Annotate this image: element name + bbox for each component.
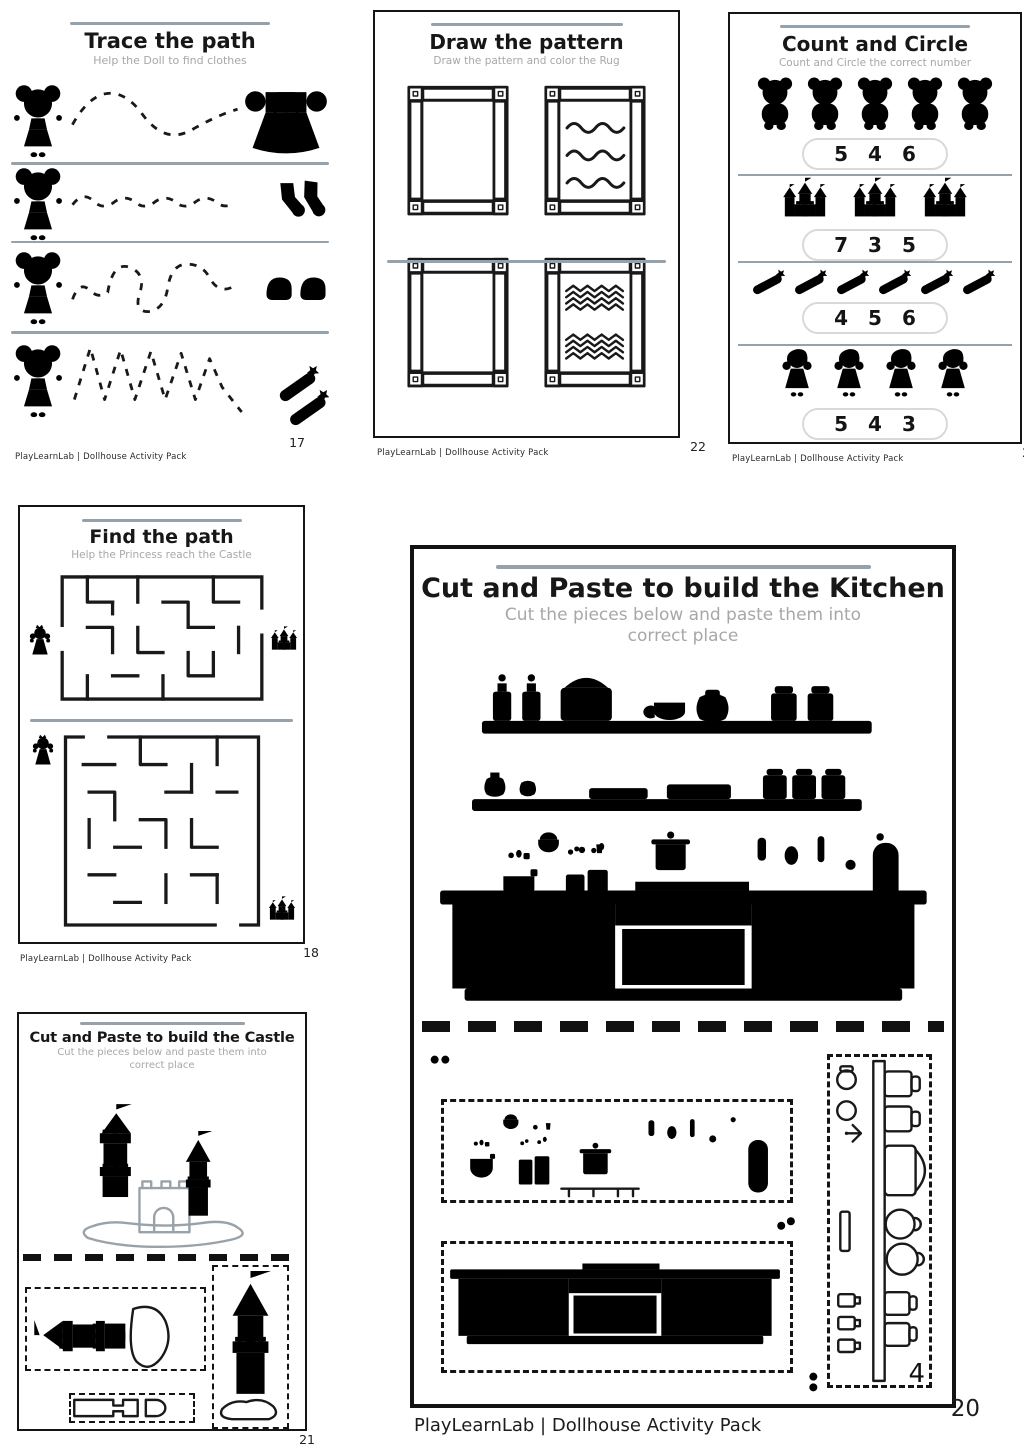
socks-icon — [273, 178, 329, 228]
page-number: 17 — [289, 435, 305, 450]
footer-brand: PlayLearnLab | Dollhouse Activity Pack — [20, 954, 192, 964]
kitchen-piece-box-shelf: 4 — [827, 1054, 932, 1388]
count-row: 546 — [730, 72, 1020, 174]
answer-option: 4 — [868, 412, 882, 436]
castle-icon — [920, 176, 970, 223]
header-underline — [80, 1022, 245, 1025]
princess-icon — [30, 733, 56, 773]
count-icons — [749, 273, 1001, 292]
divider-line — [387, 260, 666, 263]
kitchen-piece-shelf-rotated — [830, 1057, 929, 1385]
bear-icon — [754, 76, 796, 132]
castle-piece-tower-upright — [214, 1267, 287, 1427]
clip-icon — [790, 265, 834, 301]
kitchen-page: Cut and Paste to build the Kitchen Cut t… — [410, 545, 956, 1408]
castle-icon — [269, 625, 299, 654]
castle-icon — [780, 176, 830, 223]
count-icons — [771, 345, 979, 402]
answer-option: 7 — [834, 233, 848, 257]
castle-icon — [267, 895, 297, 924]
trace-row — [5, 78, 335, 162]
answer-option: 5 — [868, 306, 882, 330]
header-underline — [780, 25, 970, 28]
trace-path-wave_mixed — [69, 248, 245, 326]
page-subtitle: Cut the pieces below and paste them into… — [57, 1047, 267, 1072]
trace-row — [5, 165, 335, 241]
doll-icon — [13, 249, 63, 325]
count-rows: 546 735 456 543 — [730, 72, 1020, 438]
header-underline — [496, 565, 871, 569]
piece-number-label: 4 — [908, 1359, 925, 1389]
trace-path-wave_small — [69, 178, 245, 228]
castle-piece-tower-lying — [27, 1289, 204, 1369]
hairclips-icon — [269, 361, 329, 431]
answer-option: 3 — [902, 412, 916, 436]
rug-empty — [407, 78, 509, 224]
bear-icon — [854, 76, 896, 132]
page-subtitle: Cut the pieces below and paste them into… — [473, 605, 893, 648]
page-number: 22 — [690, 439, 706, 454]
page-number: 21 — [299, 1432, 315, 1447]
trace-path-wave_big — [69, 83, 241, 157]
cut-line — [422, 1021, 944, 1032]
footer-brand: PlayLearnLab | Dollhouse Activity Pack — [732, 454, 904, 464]
count-row: 735 — [738, 174, 1012, 261]
count-icons — [750, 76, 1000, 132]
shoes-icon — [263, 267, 329, 307]
answer-option: 4 — [868, 142, 882, 166]
page-subtitle: Draw the pattern and color the Rug — [375, 55, 678, 68]
page-number: 18 — [303, 945, 319, 960]
kitchen-piece-box-utensils — [441, 1099, 793, 1203]
footer-brand: PlayLearnLab | Dollhouse Activity Pack — [377, 448, 549, 458]
answer-pill: 546 — [802, 138, 948, 170]
scissors-icon — [789, 1370, 819, 1394]
cut-line — [23, 1254, 301, 1261]
page-title: Trace the path — [5, 29, 335, 53]
answer-option: 5 — [902, 233, 916, 257]
clip-icon — [748, 265, 792, 301]
castle-illustration — [49, 1094, 274, 1252]
rug-waves — [544, 78, 646, 224]
header-underline — [82, 519, 242, 522]
header-underline — [431, 23, 623, 26]
page-title: Find the path — [20, 526, 303, 548]
answer-pill: 735 — [802, 229, 948, 261]
page-number: 20 — [951, 1396, 980, 1422]
trace-page: Trace the path Help the Doll to find clo… — [5, 8, 335, 460]
castle-page: Cut and Paste to build the Castle Cut th… — [17, 1012, 307, 1431]
maze-page: Find the path Help the Princess reach th… — [18, 505, 305, 944]
trace-path-zigzag — [69, 340, 247, 420]
page-subtitle: Help the Princess reach the Castle — [20, 549, 303, 562]
clip-icon — [832, 265, 876, 301]
kitchen-piece-counter — [444, 1244, 790, 1370]
doll-icon — [830, 345, 868, 402]
page-title: Count and Circle — [730, 32, 1020, 56]
rug-grid — [389, 78, 664, 396]
castle-piece-small — [71, 1395, 193, 1421]
page-title: Draw the pattern — [375, 30, 678, 54]
kitchen-illustration — [432, 655, 930, 1013]
trace-rows — [5, 78, 335, 426]
page-title: Cut and Paste to build the Kitchen — [414, 573, 952, 604]
doll-icon — [934, 345, 972, 402]
answer-option: 6 — [902, 306, 916, 330]
kitchen-piece-utensils — [444, 1102, 790, 1200]
castle-piece-box-tall — [212, 1265, 289, 1429]
doll-icon — [13, 165, 63, 241]
footer-brand: PlayLearnLab | Dollhouse Activity Pack — [15, 452, 187, 462]
doll-icon — [13, 342, 63, 418]
clip-icon — [916, 265, 960, 301]
princess-icon — [27, 623, 53, 663]
bear-icon — [954, 76, 996, 132]
castle-icon — [850, 176, 900, 223]
answer-option: 4 — [834, 306, 848, 330]
header-underline — [70, 22, 270, 25]
count-row: 543 — [738, 344, 1012, 438]
dress-icon — [243, 81, 329, 159]
kitchen-piece-box-counter — [441, 1241, 793, 1373]
castle-piece-box-small — [69, 1393, 195, 1423]
pattern-page: Draw the pattern Draw the pattern and co… — [373, 10, 680, 438]
castle-piece-box-wide — [25, 1287, 206, 1371]
trace-row — [5, 243, 335, 331]
bear-icon — [804, 76, 846, 132]
scissors-icon — [428, 1054, 452, 1084]
answer-option: 3 — [868, 233, 882, 257]
answer-pill: 543 — [802, 408, 948, 440]
maze-top — [60, 575, 264, 701]
maze-bottom — [62, 735, 262, 927]
count-icons — [770, 176, 980, 223]
doll-icon — [882, 345, 920, 402]
rug-zigzag — [544, 250, 646, 396]
page-title: Cut and Paste to build the Castle — [19, 1029, 305, 1046]
worksheet-collage: Trace the path Help the Doll to find clo… — [0, 0, 1024, 1448]
rug-empty — [407, 250, 509, 396]
answer-option: 6 — [902, 142, 916, 166]
page-subtitle: Count and Circle the correct number — [730, 57, 1020, 70]
clip-icon — [874, 265, 918, 301]
answer-pill: 456 — [802, 302, 948, 334]
count-page: Count and Circle Count and Circle the co… — [728, 12, 1022, 444]
count-row: 456 — [738, 261, 1012, 344]
answer-option: 5 — [834, 412, 848, 436]
divider-line — [30, 719, 293, 722]
trace-row — [5, 334, 335, 426]
page-subtitle: Help the Doll to find clothes — [5, 54, 335, 68]
footer-brand: PlayLearnLab | Dollhouse Activity Pack — [414, 1415, 761, 1436]
answer-option: 5 — [834, 142, 848, 166]
clip-icon — [958, 265, 1002, 301]
doll-icon — [13, 82, 63, 158]
doll-icon — [778, 345, 816, 402]
bear-icon — [904, 76, 946, 132]
